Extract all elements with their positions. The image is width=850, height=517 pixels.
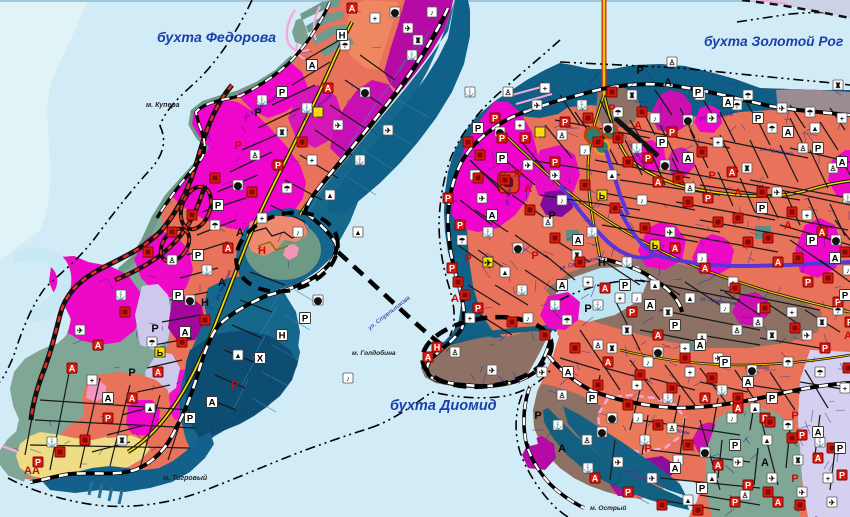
svg-text:☂: ☂ [807, 108, 814, 117]
svg-text:Ь: Ь [599, 191, 606, 201]
svg-text:Р: Р [445, 193, 451, 203]
svg-text:Р: Р [187, 414, 194, 425]
svg-text:♪: ♪ [636, 414, 640, 423]
svg-text:+: + [586, 278, 591, 287]
svg-text:▲: ▲ [608, 171, 615, 180]
svg-text:А: А [702, 263, 709, 273]
svg-text:♙: ♙ [742, 491, 749, 500]
svg-text:Р: Р [522, 133, 528, 143]
svg-text:▲: ▲ [146, 404, 153, 413]
svg-text:А: А [325, 83, 332, 93]
svg-text:✈: ✈ [484, 258, 492, 268]
svg-text:▲: ▲ [501, 268, 508, 277]
svg-text:♪: ♪ [583, 146, 587, 155]
svg-text:+: + [790, 308, 795, 317]
svg-text:⚓: ⚓ [593, 301, 602, 310]
svg-text:Р: Р [531, 250, 538, 262]
svg-text:♜: ♜ [769, 331, 776, 340]
svg-text:А: А [602, 283, 609, 293]
svg-text:⚓: ⚓ [465, 88, 474, 97]
svg-text:⬤: ⬤ [514, 244, 523, 254]
svg-text:▲: ▲ [234, 351, 241, 360]
svg-text:Р: Р [254, 107, 261, 119]
svg-text:+: + [90, 376, 95, 385]
svg-text:+: + [310, 156, 315, 165]
svg-text:А: А [715, 460, 722, 470]
svg-text:Р: Р [548, 210, 555, 222]
svg-text:✈: ✈ [552, 171, 559, 180]
svg-text:⚓: ⚓ [622, 258, 631, 267]
svg-text:♜: ♜ [624, 326, 631, 335]
svg-text:А: А [832, 254, 839, 265]
svg-text:⚓: ⚓ [483, 228, 492, 237]
svg-text:✈: ✈ [77, 326, 84, 335]
svg-text:А: А [729, 167, 736, 177]
svg-text:А: А [489, 211, 496, 222]
svg-text:Р: Р [151, 323, 158, 335]
svg-text:Н: Н [514, 167, 522, 179]
svg-text:Р: Р [842, 291, 849, 302]
svg-text:А: А [218, 277, 226, 289]
svg-text:✈: ✈ [525, 161, 532, 170]
svg-text:♪: ♪ [296, 228, 300, 237]
svg-text:+: + [635, 381, 640, 390]
svg-text:м. Острый: м. Острый [590, 504, 626, 512]
svg-text:Р: Р [499, 154, 506, 165]
svg-text:Р: Р [815, 144, 822, 155]
svg-text:А: А [565, 368, 572, 379]
svg-text:Н: Н [434, 342, 441, 352]
svg-text:✈: ✈ [534, 101, 541, 110]
svg-text:♜: ♜ [629, 91, 636, 100]
svg-text:А: А [815, 428, 822, 439]
svg-text:А: А [647, 301, 654, 312]
svg-text:А: А [209, 398, 216, 409]
svg-text:Ь: Ь [157, 348, 164, 358]
svg-text:⬤: ⬤ [361, 88, 370, 98]
svg-text:⚓: ⚓ [517, 286, 526, 295]
svg-text:Р: Р [275, 160, 281, 170]
svg-text:Р: Р [659, 138, 666, 149]
svg-text:Р: Р [839, 470, 845, 480]
svg-text:Р: Р [759, 204, 766, 215]
svg-text:Р: Р [622, 281, 629, 292]
svg-text:Р: Р [745, 480, 751, 490]
svg-text:✈: ✈ [385, 126, 392, 135]
svg-text:♙: ♙ [505, 88, 512, 97]
svg-text:✈: ✈ [735, 458, 742, 467]
svg-text:♙: ♙ [669, 424, 676, 433]
svg-text:✈: ✈ [649, 474, 656, 483]
svg-text:⚓: ⚓ [663, 394, 672, 403]
svg-text:А: А [558, 443, 566, 455]
svg-text:Р: Р [755, 114, 762, 125]
svg-text:♪: ♪ [526, 314, 530, 323]
svg-text:⬤: ⬤ [832, 236, 841, 246]
svg-text:⚓: ⚓ [407, 51, 416, 60]
svg-text:+: + [373, 14, 378, 23]
svg-text:Р: Р [732, 441, 739, 452]
svg-text:А: А [592, 473, 599, 483]
svg-text:♜: ♜ [835, 81, 842, 90]
svg-text:А: А [775, 497, 782, 507]
svg-text:+: + [618, 294, 623, 303]
svg-text:⚓: ⚓ [202, 266, 211, 275]
svg-text:Р: Р [499, 133, 505, 143]
svg-text:⬤: ⬤ [684, 116, 693, 126]
svg-text:✈: ✈ [829, 498, 836, 507]
svg-text:А: А [69, 363, 76, 373]
svg-text:♪: ♪ [700, 254, 704, 263]
svg-text:⬤: ⬤ [391, 8, 400, 18]
svg-text:А: А [745, 378, 752, 389]
svg-text:А: А [559, 281, 566, 292]
svg-text:⚓: ⚓ [355, 156, 364, 165]
svg-text:Р: Р [492, 113, 498, 123]
svg-text:♜: ♜ [279, 128, 286, 137]
svg-text:Р: Р [584, 303, 591, 315]
svg-text:☂: ☂ [745, 91, 752, 100]
svg-text:▲: ▲ [684, 496, 691, 505]
svg-text:✈: ✈ [335, 121, 342, 130]
svg-text:♜: ♜ [415, 36, 422, 45]
svg-text:⚓: ⚓ [717, 386, 726, 395]
svg-text:⚓: ⚓ [257, 96, 266, 105]
svg-text:Р: Р [699, 484, 706, 495]
svg-text:⚡: ⚡ [534, 127, 545, 139]
svg-text:☂: ☂ [785, 358, 792, 367]
svg-text:А: А [225, 243, 232, 253]
svg-text:♜: ♜ [744, 164, 751, 173]
svg-text:Р: Р [464, 253, 471, 265]
svg-text:А: А [775, 257, 782, 267]
svg-text:✈: ✈ [489, 366, 496, 375]
svg-text:Р: Р [105, 413, 111, 423]
svg-text:Р: Р [475, 124, 482, 135]
svg-text:☂: ☂ [734, 101, 741, 110]
svg-text:А: А [697, 341, 704, 352]
svg-text:♜: ♜ [119, 436, 126, 445]
svg-text:Р: Р [645, 153, 651, 163]
svg-text:⬤: ⬤ [604, 124, 613, 134]
svg-text:♜: ♜ [819, 318, 826, 327]
svg-text:А: А [655, 330, 662, 340]
svg-text:А: А [685, 154, 692, 165]
svg-text:▲: ▲ [811, 124, 818, 133]
svg-text:⬤: ⬤ [234, 181, 243, 191]
svg-text:А: А [815, 453, 822, 463]
svg-text:⬤: ⬤ [701, 448, 710, 458]
svg-text:А: А [702, 393, 709, 403]
svg-text:✈: ✈ [779, 104, 786, 113]
svg-text:✈: ✈ [799, 488, 806, 497]
svg-text:⚓: ⚓ [577, 101, 586, 110]
svg-text:⬤: ⬤ [598, 428, 607, 438]
svg-text:☂: ☂ [342, 41, 349, 50]
svg-text:⚓: ⚓ [302, 104, 311, 113]
svg-text:⚓: ⚓ [815, 438, 824, 447]
svg-text:♪: ♪ [723, 304, 727, 313]
svg-text:Р: Р [791, 410, 798, 422]
svg-text:⚓: ⚓ [843, 194, 850, 203]
svg-text:Р: Р [175, 291, 182, 302]
svg-text:♪: ♪ [646, 358, 650, 367]
svg-text:✈: ✈ [479, 194, 486, 203]
svg-text:✈: ✈ [667, 228, 674, 237]
svg-text:☂: ☂ [615, 108, 622, 117]
svg-text:Р: Р [791, 473, 798, 485]
svg-text:♜: ♜ [609, 344, 616, 353]
svg-text:⚡: ⚡ [312, 107, 323, 119]
svg-text:✈: ✈ [709, 114, 716, 123]
svg-text:Н: Н [201, 297, 209, 309]
svg-text:♙: ♙ [452, 348, 459, 357]
svg-text:⬤: ⬤ [186, 296, 195, 306]
svg-text:Р: Р [809, 236, 816, 247]
svg-text:А: А [784, 220, 792, 232]
svg-text:А: А [451, 293, 459, 305]
svg-text:▲: ▲ [751, 404, 758, 413]
svg-text:Р: Р [769, 394, 776, 405]
svg-text:♪: ♪ [430, 8, 434, 17]
svg-text:бухта Диомид: бухта Диомид [390, 398, 497, 414]
svg-text:А: А [524, 183, 532, 195]
svg-text:м. Тигровый: м. Тигровый [163, 474, 208, 482]
svg-text:⬤: ⬤ [748, 366, 757, 376]
svg-text:♙: ♙ [559, 131, 566, 140]
svg-text:А: А [605, 357, 612, 367]
svg-text:♪: ♪ [653, 114, 657, 123]
svg-text:Ь: Ь [652, 241, 659, 251]
svg-text:бухта Федорова: бухта Федорова [157, 30, 276, 46]
svg-text:А: А [309, 61, 316, 72]
svg-text:+: + [688, 368, 693, 377]
svg-text:Р: Р [475, 303, 481, 313]
svg-text:Р: Р [822, 343, 828, 353]
svg-text:А: А [634, 120, 642, 132]
svg-text:Н: Н [598, 257, 606, 269]
svg-text:Р: Р [449, 263, 455, 273]
svg-text:А: А [655, 177, 662, 187]
svg-text:А: А [839, 158, 846, 169]
svg-text:Р: Р [669, 127, 675, 137]
svg-text:✈: ✈ [405, 24, 412, 33]
svg-text:☂: ☂ [817, 368, 824, 377]
svg-text:⚓: ⚓ [47, 438, 56, 447]
svg-text:А: А [664, 77, 672, 89]
svg-text:▲: ▲ [326, 191, 333, 200]
svg-text:+: + [843, 384, 848, 393]
svg-text:Р: Р [732, 497, 738, 507]
svg-text:☂: ☂ [149, 338, 156, 347]
svg-text:Х: Х [257, 354, 264, 365]
svg-text:⚓: ⚓ [583, 464, 592, 473]
svg-text:Н: Н [279, 331, 286, 342]
svg-text:Р: Р [302, 314, 309, 325]
svg-text:♙: ♙ [669, 58, 676, 67]
svg-text:♪: ♪ [346, 374, 350, 383]
svg-text:Р: Р [234, 140, 241, 152]
svg-text:♙: ♙ [755, 318, 762, 327]
svg-text:✈: ✈ [769, 474, 776, 483]
svg-text:Р: Р [625, 487, 631, 497]
svg-text:А: А [349, 3, 356, 13]
svg-text:Р: Р [195, 251, 202, 262]
svg-text:+: + [260, 214, 265, 223]
svg-text:♪: ♪ [846, 266, 850, 275]
svg-text:▲: ▲ [354, 228, 361, 237]
svg-text:Р: Р [215, 201, 222, 212]
svg-text:бухта Золотой Рог: бухта Золотой Рог [704, 34, 843, 49]
svg-text:♙: ♙ [169, 256, 176, 265]
svg-text:⚓: ⚓ [587, 228, 596, 237]
svg-text:♪: ♪ [730, 414, 734, 423]
svg-text:А: А [761, 457, 769, 469]
svg-text:Р: Р [644, 443, 651, 455]
svg-text:♙: ♙ [252, 151, 259, 160]
svg-text:м. Голдобина: м. Голдобина [352, 349, 396, 357]
svg-text:☂: ☂ [459, 236, 466, 245]
svg-text:А: А [236, 227, 244, 239]
svg-text:Р: Р [457, 220, 463, 230]
svg-text:♙: ♙ [559, 391, 566, 400]
svg-text:Р: Р [562, 117, 568, 127]
svg-text:♪: ♪ [635, 294, 639, 303]
svg-text:♙: ♙ [687, 184, 694, 193]
svg-text:Р: Р [805, 277, 811, 287]
svg-text:♙: ♙ [734, 326, 741, 335]
svg-text:+: + [840, 114, 845, 123]
svg-text:Р: Р [636, 65, 643, 77]
svg-text:АА: АА [24, 465, 40, 477]
svg-text:✈: ✈ [615, 458, 622, 467]
svg-text:⬤: ⬤ [314, 296, 323, 306]
svg-text:Р: Р [608, 103, 615, 115]
svg-text:А: А [734, 187, 742, 199]
svg-text:⚓: ⚓ [550, 301, 559, 310]
svg-text:⚓: ⚓ [116, 291, 125, 300]
svg-text:А: А [155, 367, 162, 377]
svg-text:♪: ♪ [640, 196, 644, 205]
svg-text:+: + [716, 138, 721, 147]
svg-text:☂: ☂ [785, 421, 792, 430]
svg-text:♙: ♙ [800, 144, 807, 153]
svg-text:+: + [805, 211, 810, 220]
svg-text:☂: ☂ [769, 124, 776, 133]
svg-text:⚓: ⚓ [553, 421, 562, 430]
svg-text:♜: ♜ [665, 308, 672, 317]
svg-text:Р: Р [722, 358, 729, 369]
svg-text:Р: Р [672, 321, 679, 332]
svg-text:А: А [725, 98, 732, 109]
svg-text:♪: ♪ [560, 196, 564, 205]
svg-text:♙: ♙ [584, 436, 591, 445]
svg-text:♙: ♙ [595, 341, 602, 350]
svg-text:А: А [819, 227, 826, 237]
svg-text:▲: ▲ [686, 294, 693, 303]
svg-text:✈: ✈ [774, 188, 781, 197]
svg-text:А: А [672, 464, 679, 475]
svg-text:Р: Р [552, 157, 558, 167]
svg-text:А: А [672, 243, 679, 253]
svg-text:+: + [468, 314, 473, 323]
svg-text:А: А [95, 340, 102, 350]
svg-text:Н: Н [258, 245, 266, 257]
svg-text:♜: ♜ [795, 456, 802, 465]
svg-text:▲: ▲ [651, 281, 658, 290]
svg-text:☂: ☂ [564, 316, 571, 325]
svg-text:А: А [575, 236, 582, 247]
svg-text:Р: Р [799, 430, 805, 440]
svg-text:Р: Р [695, 88, 702, 99]
svg-text:☂: ☂ [284, 184, 291, 193]
svg-text:⚓: ⚓ [632, 144, 641, 153]
svg-text:✈: ✈ [539, 368, 546, 377]
svg-text:⬤: ⬤ [654, 348, 663, 358]
svg-text:м. Купера: м. Купера [146, 102, 180, 109]
svg-text:♙: ♙ [830, 164, 837, 173]
svg-text:▲: ▲ [763, 436, 770, 445]
svg-text:Р: Р [128, 367, 135, 379]
svg-text:Р: Р [708, 170, 715, 182]
svg-text:Р: Р [705, 193, 711, 203]
svg-text:А: А [735, 403, 742, 413]
svg-text:Р: Р [279, 88, 286, 99]
svg-text:А: А [844, 330, 850, 342]
svg-text:Р: Р [231, 380, 238, 392]
svg-text:Р: Р [589, 394, 596, 405]
svg-text:▲: ▲ [708, 474, 715, 483]
svg-text:Р: Р [837, 444, 844, 455]
svg-text:А: А [425, 352, 432, 362]
svg-text:+: + [518, 121, 523, 130]
svg-text:☂: ☂ [212, 221, 219, 230]
svg-text:+: + [683, 344, 688, 353]
svg-text:⬤: ⬤ [661, 161, 670, 171]
svg-text:⬤: ⬤ [608, 414, 617, 424]
svg-text:Р: Р [534, 410, 541, 422]
svg-text:А: А [129, 393, 136, 403]
svg-text:А: А [182, 328, 189, 339]
svg-text:+: + [543, 84, 548, 93]
svg-text:А: А [785, 128, 792, 139]
svg-text:А: А [105, 394, 112, 405]
svg-text:✈: ✈ [804, 331, 811, 340]
svg-text:Н: Н [339, 31, 346, 42]
svg-text:+: + [826, 474, 831, 483]
svg-text:Р: Р [629, 307, 635, 317]
